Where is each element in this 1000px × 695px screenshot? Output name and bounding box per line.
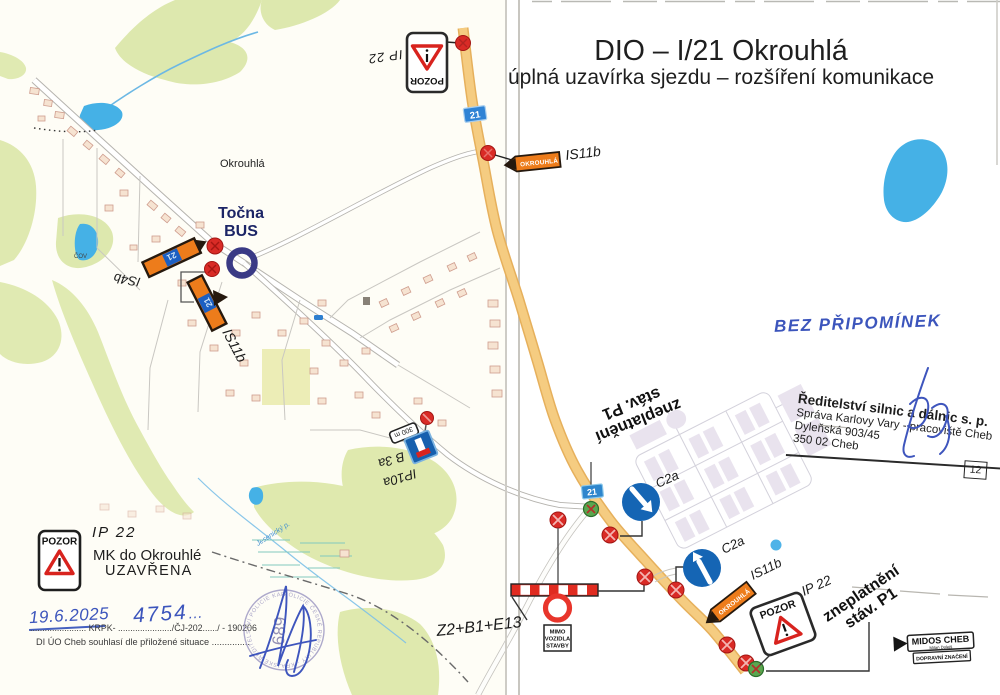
svg-text:STAVBY: STAVBY — [546, 644, 569, 650]
svg-text:POZOR: POZOR — [410, 75, 444, 86]
svg-text:Okrouhlá: Okrouhlá — [220, 158, 266, 170]
svg-text:BUS: BUS — [224, 223, 258, 240]
svg-text:Točna: Točna — [218, 205, 264, 222]
svg-text:VOZIDLA: VOZIDLA — [545, 637, 571, 643]
svg-text:ČOV: ČOV — [74, 253, 87, 260]
svg-text:21: 21 — [586, 487, 597, 498]
svg-text:POZOR: POZOR — [42, 537, 78, 548]
svg-text:MIMO: MIMO — [550, 630, 566, 636]
